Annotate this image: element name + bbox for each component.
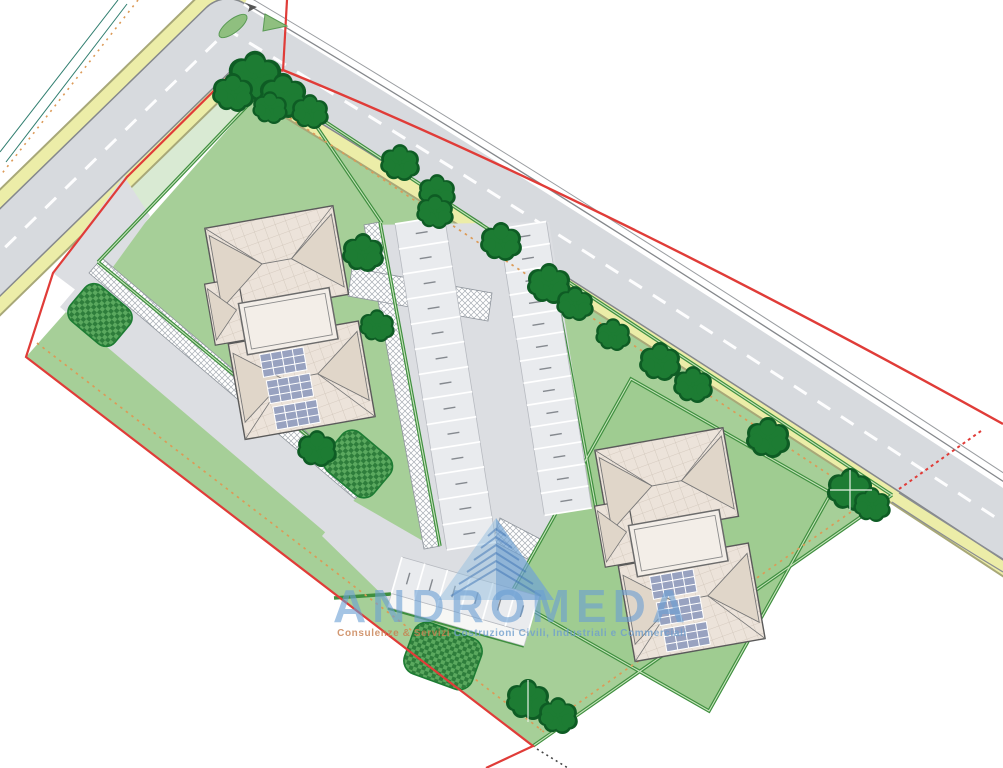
watermark-tagline-part2: Costruzioni Civili, Industriali e Commer… [454, 628, 687, 639]
site-plan-page: ANDROMEDA Consulenze & Servizi Costruzio… [0, 0, 1003, 768]
site-plan-drawing: ANDROMEDA Consulenze & Servizi Costruzio… [0, 0, 1003, 768]
watermark-tagline: Consulenze & Servizi Costruzioni Civili,… [337, 628, 687, 639]
watermark-brand-text: ANDROMEDA [333, 580, 691, 632]
watermark-tagline-part1: Consulenze & Servizi [337, 628, 450, 639]
